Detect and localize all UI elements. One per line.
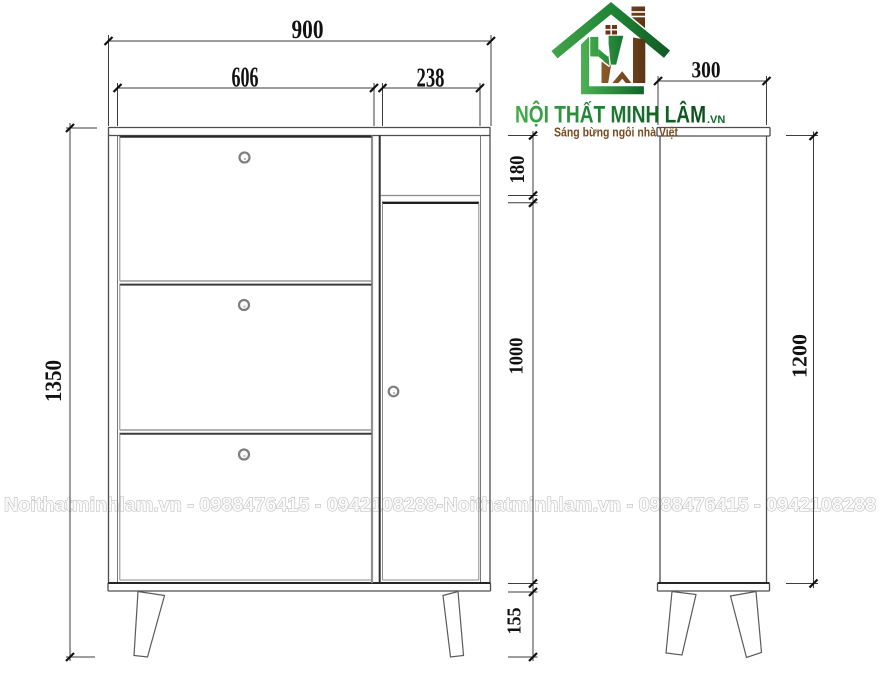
svg-text:300: 300 <box>692 58 721 83</box>
svg-text:Noithatminhlam.vn - 0988476415: Noithatminhlam.vn - 0988476415 - 0942108… <box>4 494 876 516</box>
svg-text:238: 238 <box>417 63 445 93</box>
svg-text:900: 900 <box>292 15 324 44</box>
svg-text:180: 180 <box>505 156 529 184</box>
svg-text:155: 155 <box>504 608 526 635</box>
svg-text:Sáng bừng ngôi nhà Việt: Sáng bừng ngôi nhà Việt <box>554 126 679 140</box>
svg-text:1000: 1000 <box>506 338 528 375</box>
svg-text:NỘI THẤT MINH LÂM: NỘI THẤT MINH LÂM <box>515 101 706 129</box>
svg-text:1350: 1350 <box>41 360 67 402</box>
svg-text:.VN: .VN <box>707 114 725 126</box>
svg-text:1200: 1200 <box>788 334 812 378</box>
svg-text:606: 606 <box>232 63 259 94</box>
